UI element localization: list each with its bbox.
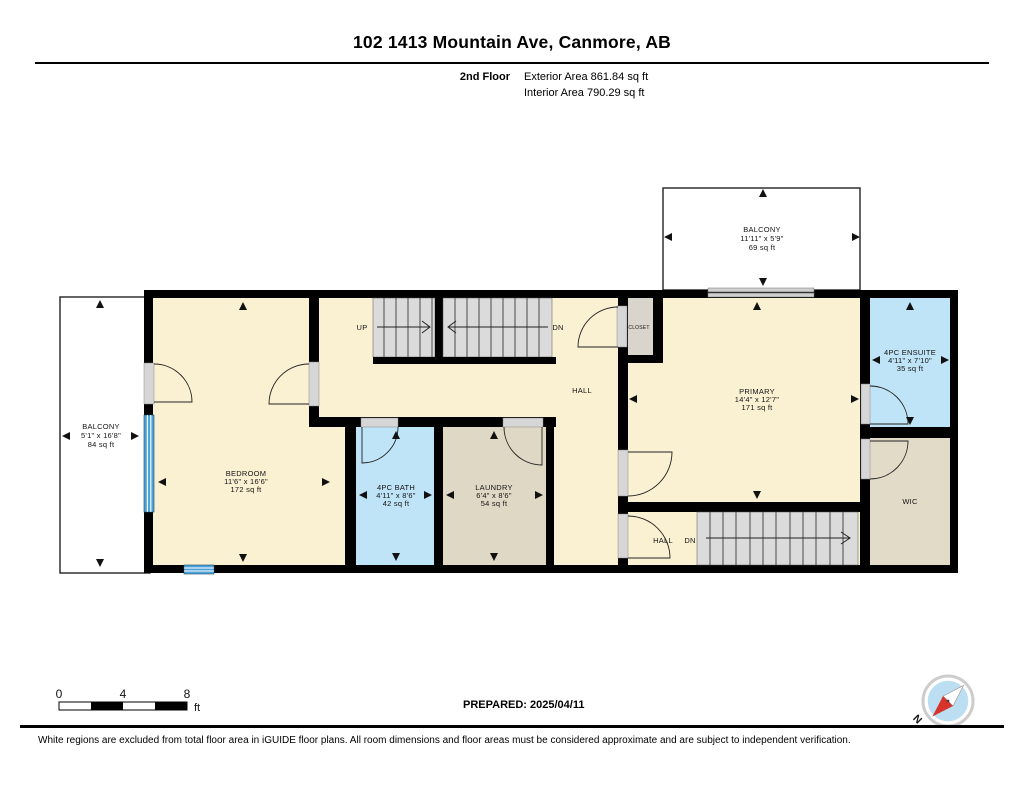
- balcony-left: BALCONY 5'1" x 16'8" 84 sq ft: [60, 297, 150, 573]
- window-bedroom-balcony: [144, 415, 154, 512]
- sliding-door-primary-balcony: [708, 288, 814, 297]
- balcony-top-dims: 11'11" x 5'9": [740, 234, 783, 243]
- footer-divider: [20, 725, 1004, 728]
- stairs-up-label: UP: [357, 323, 368, 332]
- scale-tick-8: 8: [184, 687, 191, 701]
- stairs-down-label: DN: [552, 323, 563, 332]
- balcony-left-area: 84 sq ft: [88, 440, 115, 449]
- compass-north-label: N: [911, 712, 925, 726]
- bath-area: 42 sq ft: [383, 499, 410, 508]
- compass-icon: N: [911, 676, 973, 726]
- floorplan-page: 102 1413 Mountain Ave, Canmore, AB 2nd F…: [0, 0, 1024, 791]
- stairs-down-lower: [697, 512, 858, 565]
- scale-tick-0: 0: [56, 687, 63, 701]
- scale-unit: ft: [194, 702, 200, 714]
- laundry-area: 54 sq ft: [481, 499, 508, 508]
- balcony-top-area: 69 sq ft: [749, 243, 776, 252]
- balcony-top-name: BALCONY: [743, 225, 781, 234]
- stair-divider-wall: [435, 298, 443, 357]
- stair-landing-wall: [373, 357, 556, 364]
- balcony-left-name: BALCONY: [82, 422, 120, 431]
- bedroom-area: 172 sq ft: [230, 485, 262, 494]
- primary-area: 171 sq ft: [741, 403, 773, 412]
- stairs-down-lower-label: DN: [684, 536, 695, 545]
- stairs-down: [443, 298, 552, 357]
- closet-label: CLOSET: [628, 325, 649, 331]
- stairs-up: [373, 298, 435, 357]
- ensuite-area: 35 sq ft: [897, 364, 924, 373]
- window-bedroom-bottom: [184, 565, 214, 574]
- hall-lower-label: HALL: [653, 536, 673, 545]
- floor-plan-drawing: BALCONY 11'11" x 5'9" 69 sq ft BALCONY 5…: [0, 0, 1024, 791]
- balcony-left-dims: 5'1" x 16'8": [81, 431, 121, 440]
- scale-bar: 0 4 8 ft: [56, 687, 200, 714]
- prepared-date: PREPARED: 2025/04/11: [463, 699, 584, 711]
- wic-label: WIC: [902, 497, 918, 506]
- hall-label: HALL: [572, 386, 592, 395]
- scale-tick-4: 4: [120, 687, 127, 701]
- disclaimer-text: White regions are excluded from total fl…: [38, 735, 851, 746]
- balcony-top: BALCONY 11'11" x 5'9" 69 sq ft: [663, 188, 860, 290]
